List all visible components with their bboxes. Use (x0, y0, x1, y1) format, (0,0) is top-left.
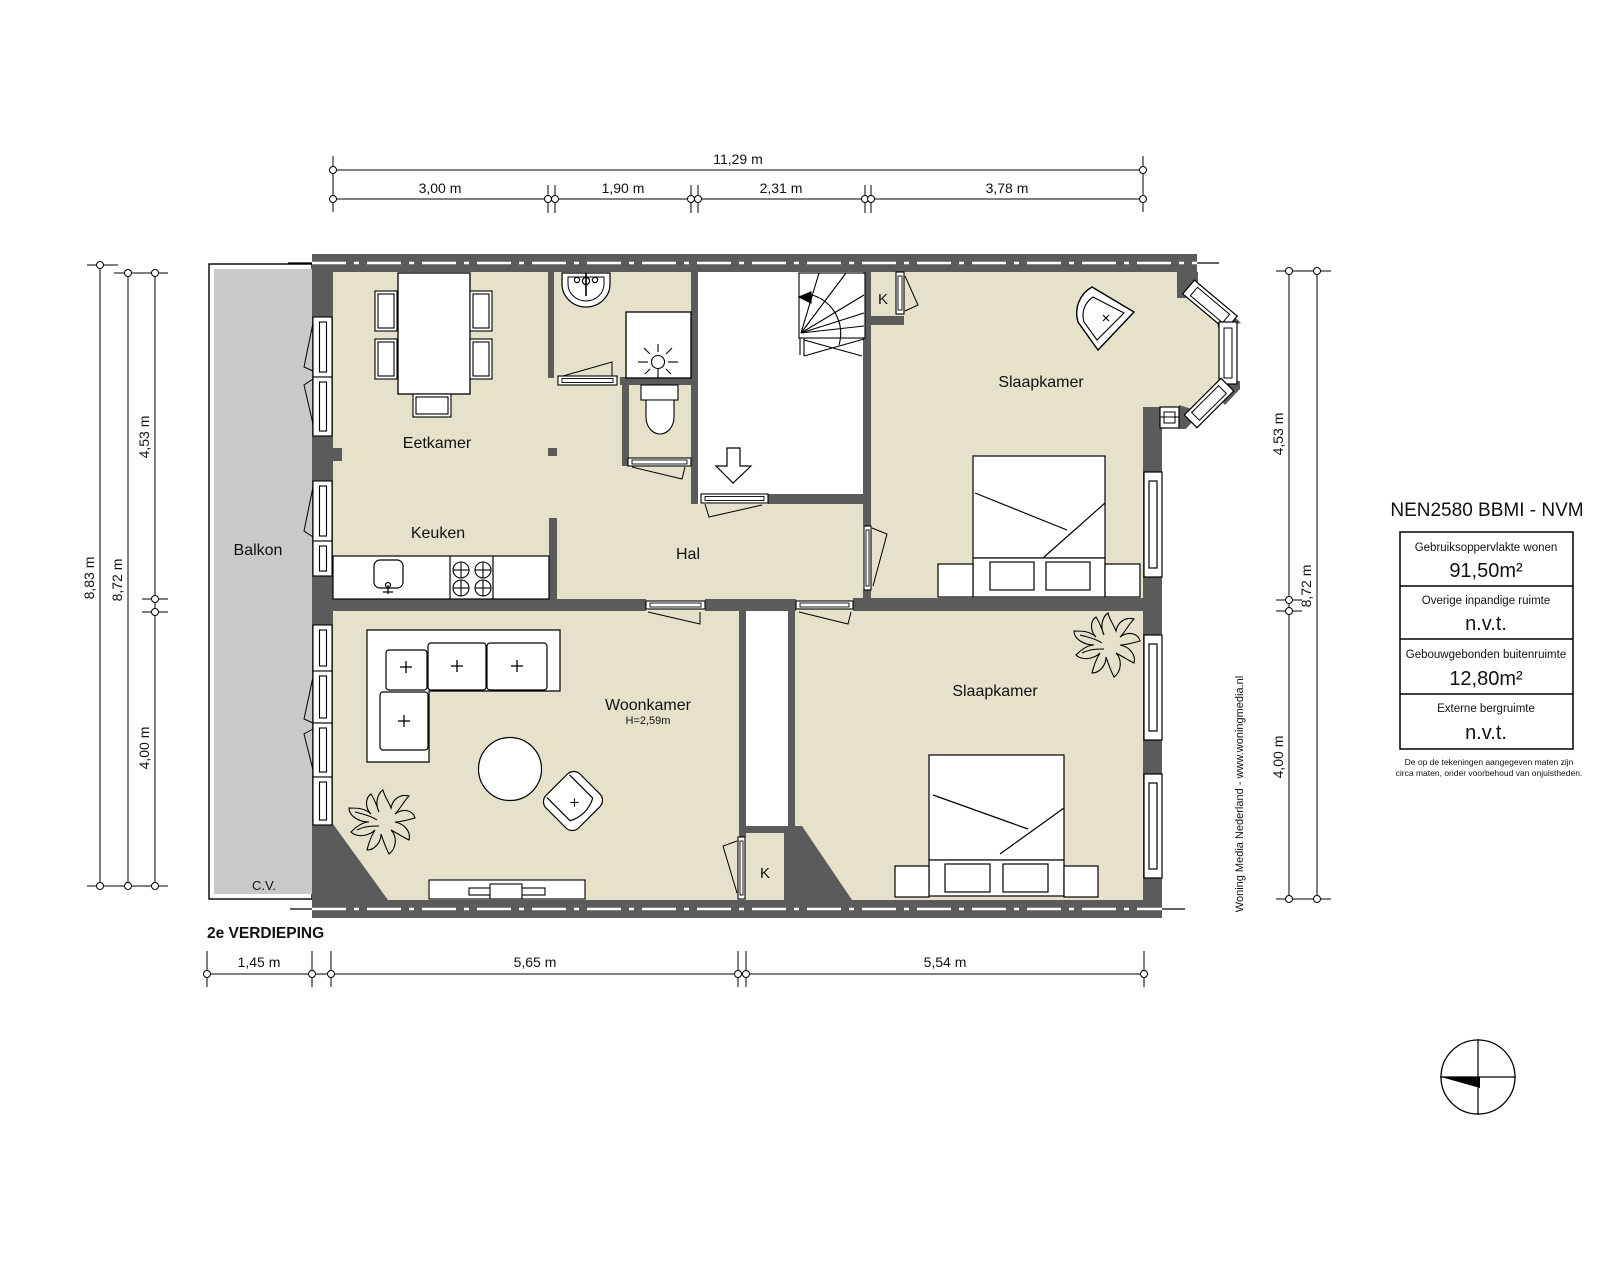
svg-text:H=2,59m: H=2,59m (626, 715, 671, 727)
svg-text:5,54 m: 5,54 m (924, 954, 967, 970)
svg-text:circa maten, onder voorbehoud: circa maten, onder voorbehoud van onjuis… (1396, 768, 1583, 778)
svg-text:Slaapkamer: Slaapkamer (998, 374, 1084, 391)
svg-text:K: K (760, 865, 770, 882)
svg-text:De op de tekeningen aangegeven: De op de tekeningen aangegeven maten zij… (1405, 757, 1574, 767)
svg-text:8,72 m: 8,72 m (109, 559, 125, 602)
svg-text:4,53 m: 4,53 m (1270, 413, 1286, 456)
svg-text:C.V.: C.V. (252, 878, 276, 893)
svg-text:1,45 m: 1,45 m (238, 954, 281, 970)
svg-text:K: K (878, 291, 888, 308)
svg-text:11,29 m: 11,29 m (713, 151, 763, 167)
svg-text:91,50m²: 91,50m² (1449, 560, 1523, 582)
svg-text:12,80m²: 12,80m² (1449, 668, 1523, 690)
svg-text:8,72 m: 8,72 m (1298, 565, 1314, 608)
svg-text:3,00 m: 3,00 m (419, 180, 462, 196)
svg-text:Slaapkamer: Slaapkamer (952, 683, 1038, 700)
svg-text:Hal: Hal (676, 546, 700, 563)
svg-text:2e VERDIEPING: 2e VERDIEPING (207, 925, 324, 942)
svg-text:Eetkamer: Eetkamer (403, 435, 472, 452)
svg-text:8,83 m: 8,83 m (81, 557, 97, 600)
svg-text:4,00 m: 4,00 m (136, 727, 152, 770)
svg-text:2,31 m: 2,31 m (760, 180, 803, 196)
svg-text:Woonkamer: Woonkamer (605, 697, 692, 714)
svg-text:5,65 m: 5,65 m (514, 954, 557, 970)
svg-text:Woning Media Nederland - www.w: Woning Media Nederland - www.woningmedia… (1234, 676, 1246, 912)
svg-text:n.v.t.: n.v.t. (1465, 613, 1507, 635)
svg-text:Overige inpandige ruimte: Overige inpandige ruimte (1422, 595, 1551, 607)
svg-text:NEN2580 BBMI - NVM: NEN2580 BBMI - NVM (1390, 500, 1583, 521)
svg-text:4,53 m: 4,53 m (136, 416, 152, 459)
svg-text:4,00 m: 4,00 m (1270, 736, 1286, 779)
svg-text:Gebouwgebonden buitenruimte: Gebouwgebonden buitenruimte (1406, 649, 1566, 661)
svg-text:3,78 m: 3,78 m (986, 180, 1029, 196)
svg-text:Keuken: Keuken (411, 525, 465, 542)
svg-text:Balkon: Balkon (234, 542, 283, 559)
svg-text:Gebruiksoppervlakte wonen: Gebruiksoppervlakte wonen (1415, 542, 1558, 554)
svg-text:1,90 m: 1,90 m (602, 180, 645, 196)
svg-text:Externe bergruimte: Externe bergruimte (1437, 703, 1535, 715)
svg-text:n.v.t.: n.v.t. (1465, 722, 1507, 744)
